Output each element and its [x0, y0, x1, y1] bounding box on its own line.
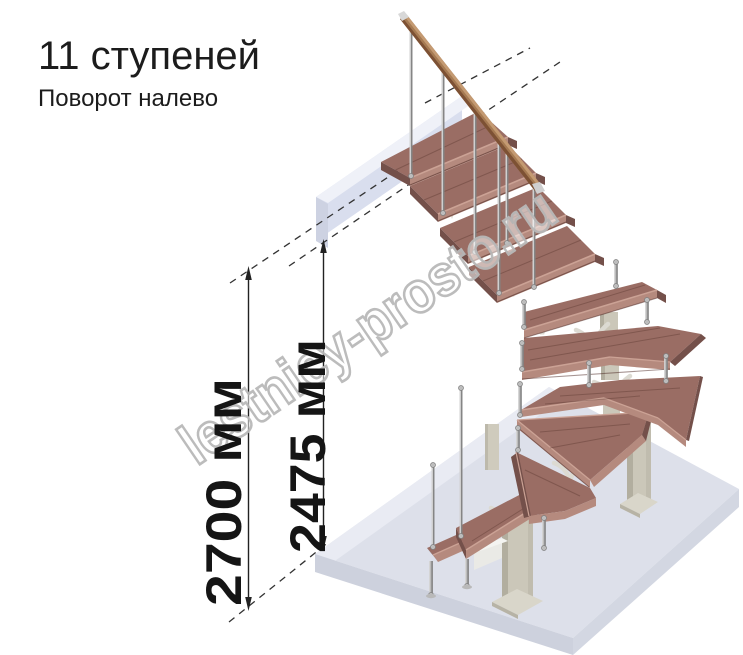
svg-text:2700 мм: 2700 мм — [196, 378, 252, 606]
svg-text:11 ступеней: 11 ступеней — [38, 34, 260, 78]
svg-text:2475 мм: 2475 мм — [280, 339, 336, 553]
svg-text:Поворот налево: Поворот налево — [38, 85, 218, 112]
